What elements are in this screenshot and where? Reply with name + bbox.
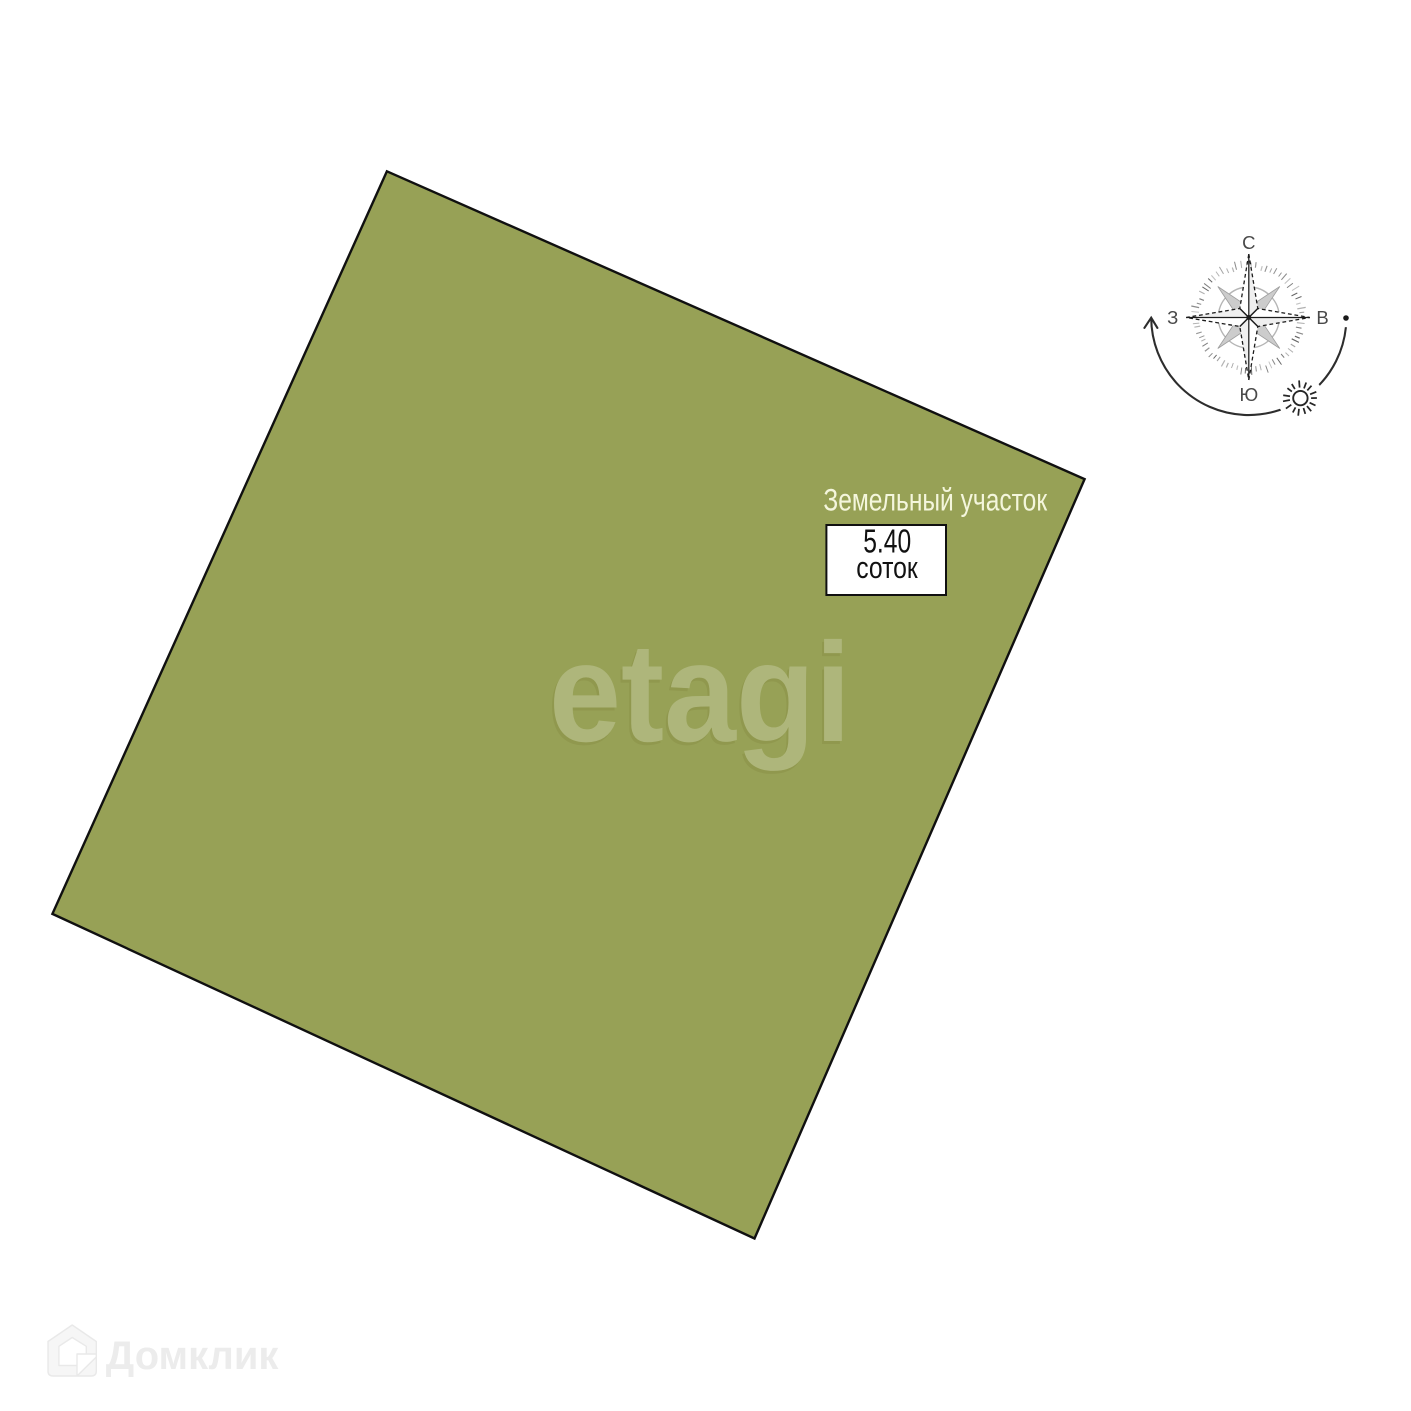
svg-text:В: В <box>1316 307 1328 328</box>
svg-text:соток: соток <box>856 550 918 585</box>
svg-text:Домклик: Домклик <box>106 1334 280 1378</box>
svg-text:Земельный участок: Земельный участок <box>823 482 1047 518</box>
svg-text:З: З <box>1167 307 1178 328</box>
svg-text:С: С <box>1242 232 1255 253</box>
svg-text:etagi: etagi <box>549 613 851 771</box>
svg-text:Ю: Ю <box>1239 384 1258 405</box>
